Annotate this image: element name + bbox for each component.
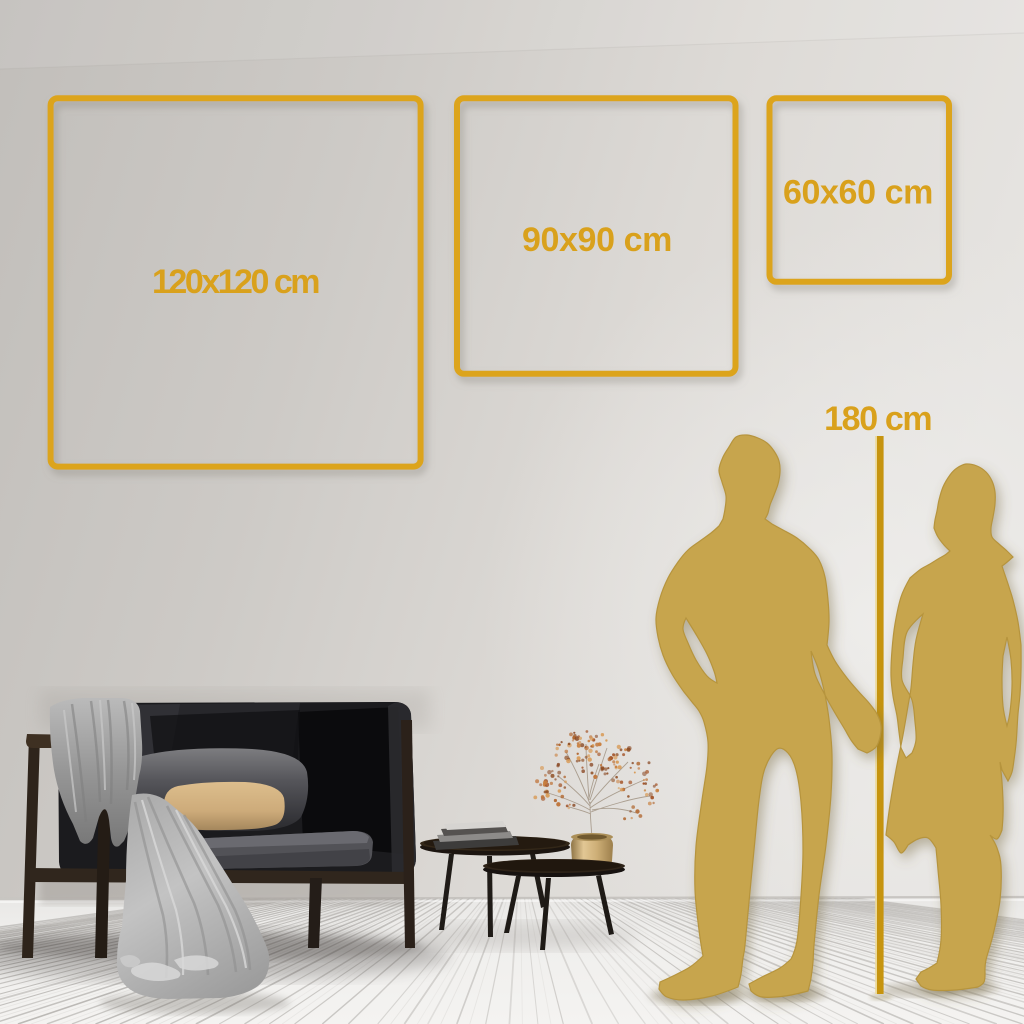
svg-text:60x60 cm: 60x60 cm xyxy=(783,174,933,212)
svg-text:120x120 cm: 120x120 cm xyxy=(152,263,319,301)
svg-text:180 cm: 180 cm xyxy=(824,400,931,438)
svg-text:90x90 cm: 90x90 cm xyxy=(522,221,672,259)
